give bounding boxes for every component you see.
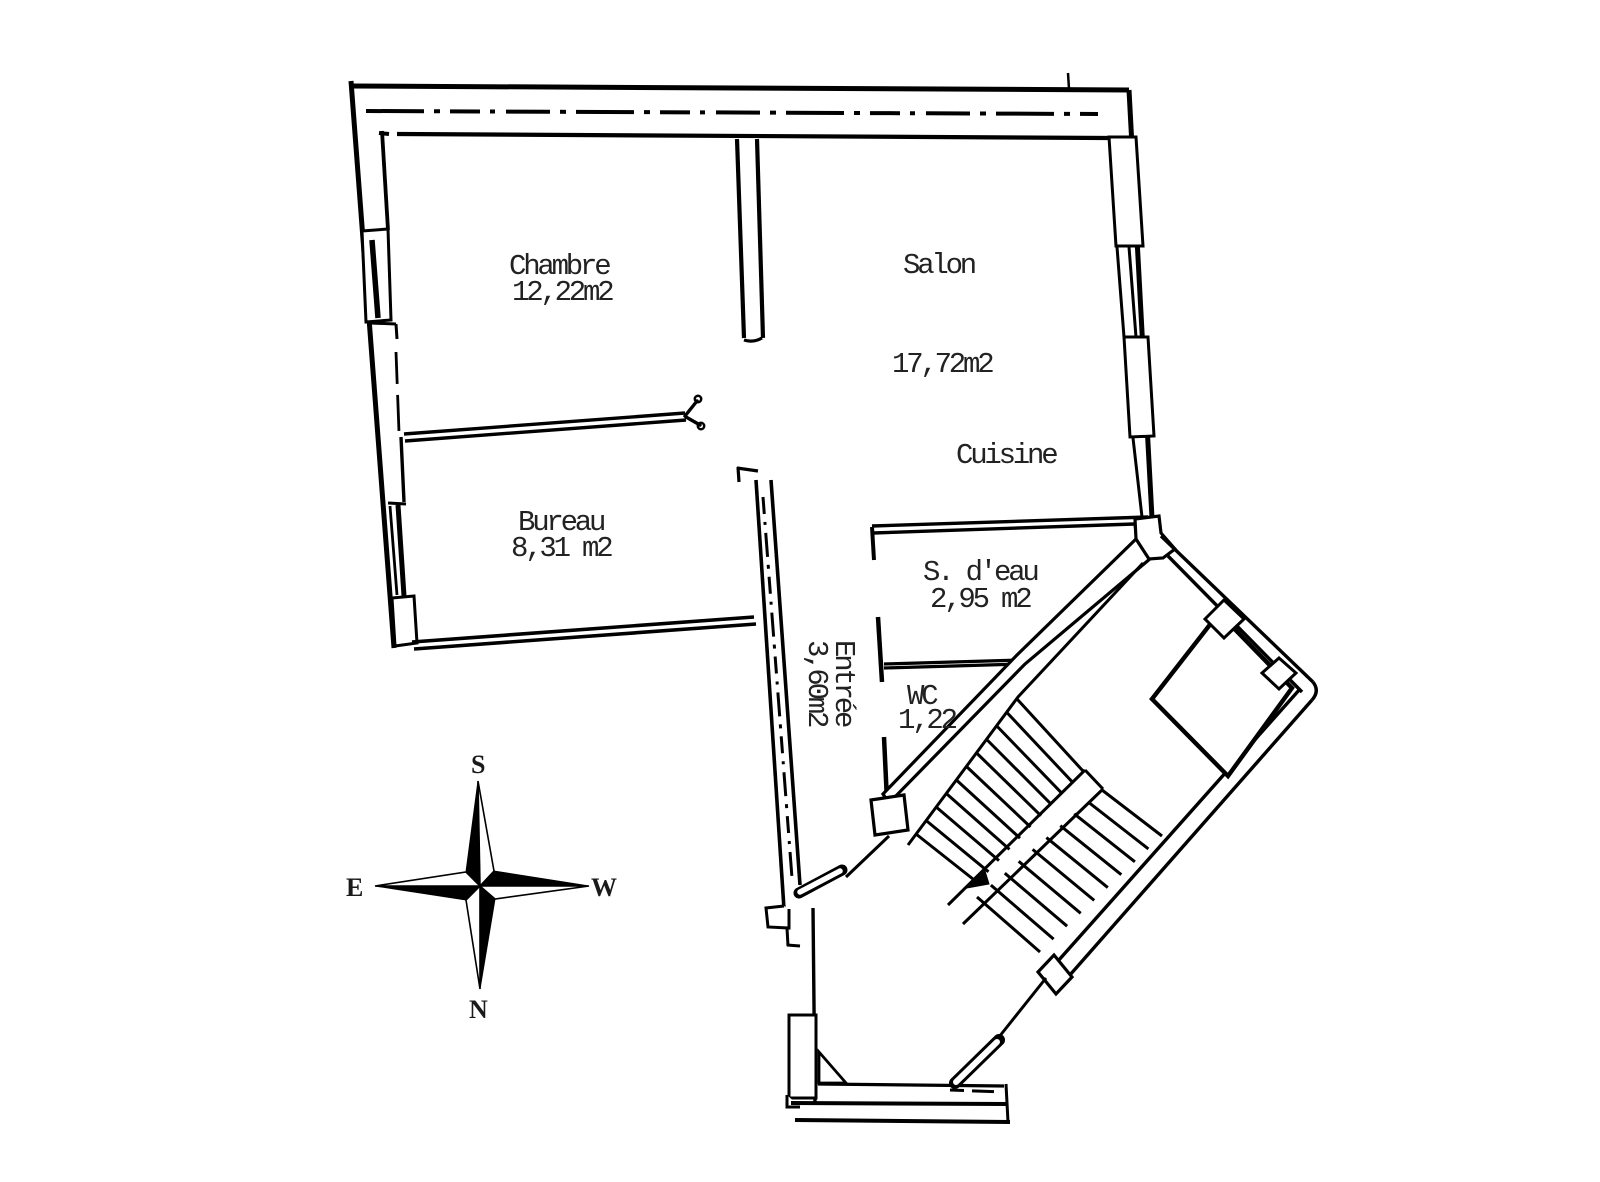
- svg-text:Entrée3,60m2: Entrée3,60m2: [800, 640, 860, 727]
- svg-text:2,95 m2: 2,95 m2: [930, 583, 1031, 616]
- svg-text:8,31 m2: 8,31 m2: [511, 532, 612, 565]
- svg-text:W: W: [591, 873, 617, 902]
- svg-text:12,22m2: 12,22m2: [512, 276, 613, 309]
- svg-text:N: N: [469, 995, 488, 1024]
- svg-text:17,72m2: 17,72m2: [892, 348, 993, 381]
- svg-text:Cuisine: Cuisine: [956, 439, 1057, 472]
- svg-text:Salon: Salon: [903, 249, 975, 282]
- svg-text:S: S: [471, 750, 485, 779]
- svg-text:1,22: 1,22: [898, 704, 957, 737]
- svg-text:E: E: [346, 873, 363, 902]
